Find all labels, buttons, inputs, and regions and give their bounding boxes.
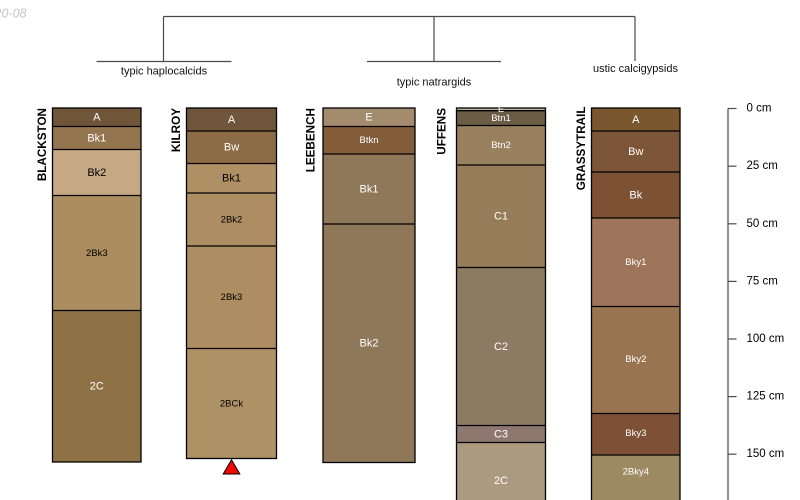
svg-text:Btn2: Btn2 [491,140,511,151]
svg-text:2Bk3: 2Bk3 [86,248,108,259]
svg-text:E: E [498,104,504,115]
svg-text:Bk2: Bk2 [360,338,379,350]
svg-text:Btkn: Btkn [359,135,378,146]
svg-text:A: A [228,114,236,126]
svg-text:E: E [365,112,372,124]
svg-text:Bw: Bw [224,142,239,154]
svg-text:Bky1: Bky1 [625,257,646,268]
svg-text:ustic calcigypsids: ustic calcigypsids [593,63,678,75]
svg-text:2BCk: 2BCk [220,399,243,410]
svg-text:0 cm: 0 cm [747,103,772,115]
svg-text:Bky3: Bky3 [625,428,646,439]
svg-text:C2: C2 [494,341,508,353]
svg-text:typic natrargids: typic natrargids [397,77,472,89]
svg-text:25 cm: 25 cm [747,160,778,172]
svg-text:100 cm: 100 cm [747,333,785,345]
svg-text:2C: 2C [494,475,508,487]
svg-text:C1: C1 [494,211,508,223]
svg-text:2C: 2C [90,381,104,393]
svg-text:125 cm: 125 cm [747,391,785,403]
svg-text:A: A [632,114,640,126]
svg-text:typic haplocalcids: typic haplocalcids [121,66,208,78]
svg-text:150 cm: 150 cm [747,448,785,460]
svg-text:Bk: Bk [629,189,642,201]
svg-text:2Bk2: 2Bk2 [221,214,243,225]
svg-text:Bw: Bw [628,146,643,158]
svg-text:Bk1: Bk1 [360,183,379,195]
svg-text:Bky2: Bky2 [625,354,646,365]
svg-text:20-08: 20-08 [0,7,27,21]
svg-text:75 cm: 75 cm [747,275,778,287]
svg-text:50 cm: 50 cm [747,218,778,230]
svg-text:Bk1: Bk1 [87,133,106,145]
svg-text:A: A [93,112,101,124]
svg-text:2Bky4: 2Bky4 [623,467,649,478]
svg-text:GRASSYTRAIL: GRASSYTRAIL [575,107,588,191]
svg-text:Bk2: Bk2 [87,167,106,179]
svg-text:BLACKSTON: BLACKSTON [36,108,49,181]
svg-text:KILROY: KILROY [170,108,183,152]
svg-text:UFFENS: UFFENS [436,108,449,155]
svg-text:C3: C3 [494,428,508,440]
svg-text:Bk1: Bk1 [222,173,241,185]
svg-text:2Bk3: 2Bk3 [221,292,243,303]
svg-text:LEEBENCH: LEEBENCH [305,108,318,172]
